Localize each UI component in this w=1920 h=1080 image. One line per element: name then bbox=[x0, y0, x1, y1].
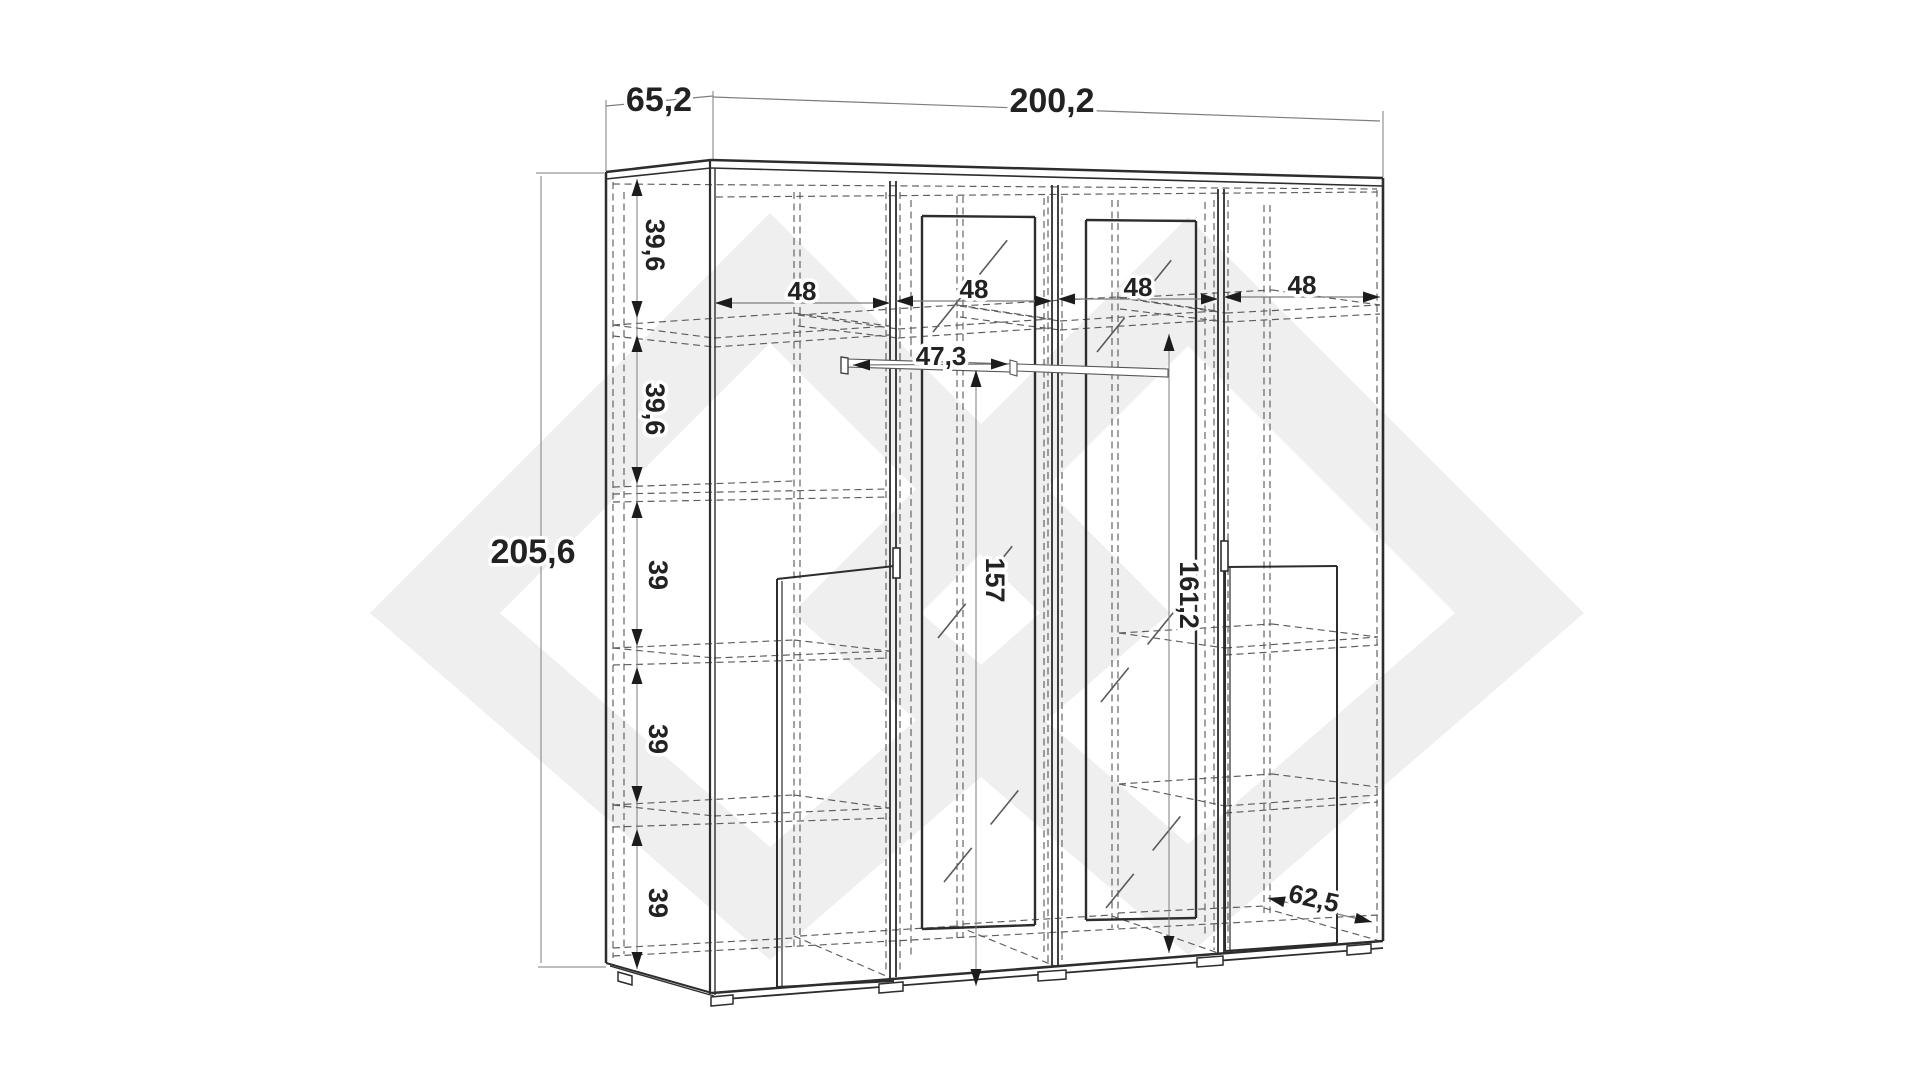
svg-text:48: 48 bbox=[1124, 272, 1153, 302]
svg-text:161,2: 161,2 bbox=[1174, 561, 1204, 629]
svg-text:39: 39 bbox=[643, 888, 673, 918]
svg-text:39,6: 39,6 bbox=[640, 219, 670, 272]
svg-text:39,6: 39,6 bbox=[640, 383, 670, 436]
svg-text:157: 157 bbox=[980, 557, 1010, 602]
svg-text:48: 48 bbox=[788, 276, 817, 306]
svg-text:48: 48 bbox=[1288, 270, 1317, 300]
svg-text:65,2: 65,2 bbox=[626, 81, 692, 119]
svg-text:39: 39 bbox=[643, 560, 673, 590]
svg-text:200,2: 200,2 bbox=[1009, 82, 1094, 120]
svg-text:39: 39 bbox=[643, 724, 673, 754]
svg-text:48: 48 bbox=[960, 274, 989, 304]
svg-text:47,3: 47,3 bbox=[916, 341, 967, 371]
svg-text:205,6: 205,6 bbox=[490, 533, 575, 571]
